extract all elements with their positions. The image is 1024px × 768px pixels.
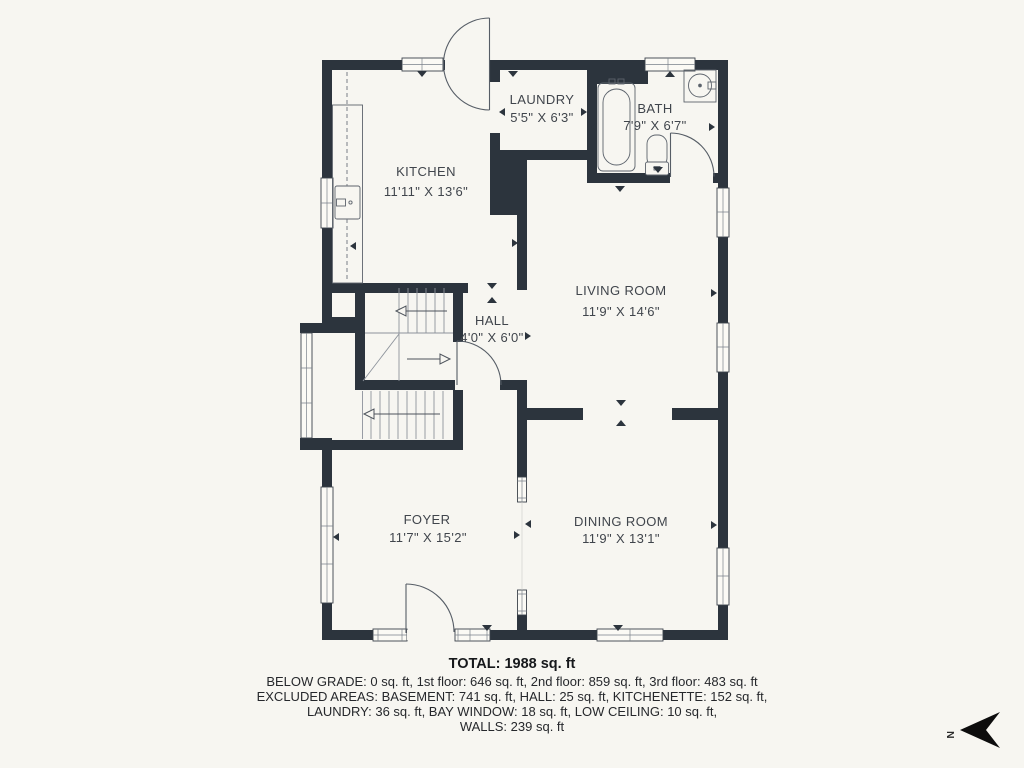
- room-dimensions: 5'5" X 6'3": [510, 110, 573, 125]
- room-label-kitchen: KITCHEN 11'11" X 13'6": [384, 164, 468, 199]
- front-door: [406, 584, 454, 633]
- north-label: N: [944, 731, 956, 739]
- hall-door: [457, 341, 501, 385]
- room-dimensions: 11'9" X 13'1": [582, 531, 660, 546]
- kitchen-counter: [333, 105, 363, 283]
- kitchen-sink: [335, 186, 360, 219]
- area-summary: TOTAL: 1988 sq. ft BELOW GRADE: 0 sq. ft…: [257, 656, 768, 734]
- room-name: DINING ROOM: [574, 514, 668, 529]
- back-door: [444, 18, 490, 110]
- north-arrow-icon: N: [944, 712, 1000, 748]
- room-label-bath: BATH 7'9" X 6'7": [623, 101, 686, 133]
- room-name: KITCHEN: [396, 164, 456, 179]
- summary-excluded-1: EXCLUDED AREAS: BASEMENT: 741 sq. ft, HA…: [257, 689, 768, 704]
- walls: [300, 60, 728, 640]
- floor-plan-canvas: KITCHEN 11'11" X 13'6" LAUNDRY 5'5" X 6'…: [0, 0, 1024, 768]
- floor-plan-page: KITCHEN 11'11" X 13'6" LAUNDRY 5'5" X 6'…: [0, 0, 1024, 768]
- summary-walls: WALLS: 239 sq. ft: [460, 719, 565, 734]
- room-label-laundry: LAUNDRY 5'5" X 6'3": [510, 92, 575, 125]
- window-mullions: [301, 58, 729, 641]
- room-name: LAUNDRY: [510, 92, 575, 107]
- summary-floors: BELOW GRADE: 0 sq. ft, 1st floor: 646 sq…: [266, 674, 758, 689]
- room-name: HALL: [475, 313, 509, 328]
- room-dimensions: 11'9" X 14'6": [582, 304, 660, 319]
- windows: [301, 58, 729, 641]
- room-dimensions: 7'9" X 6'7": [623, 118, 686, 133]
- bath-door: [671, 133, 715, 177]
- room-name: BATH: [637, 101, 672, 116]
- summary-total: TOTAL: 1988 sq. ft: [449, 656, 576, 672]
- room-name: LIVING ROOM: [575, 283, 666, 298]
- room-dimensions: 11'7" X 15'2": [389, 530, 467, 545]
- room-label-living-room: LIVING ROOM 11'9" X 14'6": [575, 283, 666, 319]
- room-label-dining-room: DINING ROOM 11'9" X 13'1": [574, 514, 668, 546]
- room-label-hall: HALL 4'0" X 6'0": [460, 313, 523, 345]
- bath-door-opening: [670, 173, 713, 183]
- room-dimensions: 11'11" X 13'6": [384, 184, 468, 199]
- room-dimensions: 4'0" X 6'0": [460, 330, 523, 345]
- bathroom-sink: [684, 70, 716, 102]
- kitchen-fixtures: [333, 72, 363, 283]
- room-name: FOYER: [404, 512, 451, 527]
- summary-excluded-2: LAUNDRY: 36 sq. ft, BAY WINDOW: 18 sq. f…: [307, 704, 717, 719]
- front-door-opening: [407, 630, 455, 640]
- room-label-foyer: FOYER 11'7" X 15'2": [389, 512, 467, 545]
